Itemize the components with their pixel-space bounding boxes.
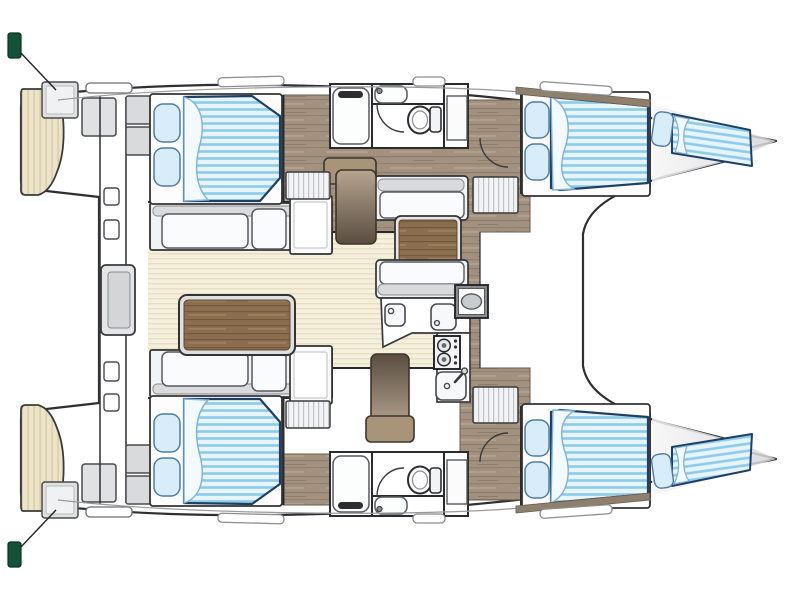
deck-hatch	[218, 76, 284, 87]
stove-knob	[454, 345, 457, 348]
wardrobe	[447, 460, 467, 504]
bench-backrest	[378, 284, 464, 295]
basin-faucet-icon	[377, 88, 382, 93]
stove	[434, 336, 460, 369]
dinette-table	[399, 220, 457, 261]
companionway-steps-port-well	[336, 170, 376, 244]
companionway-steps-starboard	[366, 416, 414, 442]
headboard-locker	[126, 445, 152, 473]
slatted-locker	[286, 172, 330, 199]
bench-backrest	[378, 179, 464, 191]
basin-faucet-icon	[377, 506, 382, 511]
cleat-icon	[8, 542, 21, 567]
slatted-locker	[473, 387, 518, 423]
entry-corner-cabinet-panel	[294, 352, 327, 398]
pillow	[525, 102, 549, 138]
bench-cushion	[380, 262, 464, 284]
stove-knob	[454, 339, 457, 342]
deck-hatch	[413, 514, 445, 523]
transom-step-box	[82, 464, 116, 502]
crossbeam-fitting	[104, 220, 119, 239]
pillow	[154, 458, 180, 496]
pillow	[154, 148, 180, 186]
transom-gate-bar	[86, 507, 132, 517]
headboard-locker	[126, 476, 152, 504]
shower-drain	[338, 502, 363, 509]
bench-cushion	[162, 214, 248, 248]
cleat-icon	[8, 33, 21, 58]
stove-knob	[454, 355, 457, 358]
floor-plan-page	[0, 0, 800, 600]
bench-cushion	[252, 351, 286, 391]
starboard-head	[330, 452, 468, 516]
port-aft-cabin-bed	[150, 94, 282, 204]
port-head	[330, 84, 468, 148]
pillow	[525, 462, 549, 498]
pillow	[651, 111, 675, 147]
starboard-aft-cabin-bed	[150, 396, 282, 506]
cockpit-table	[184, 300, 290, 350]
deck-hatch	[413, 77, 445, 86]
pillow	[154, 414, 180, 452]
galley-sink-small	[385, 304, 405, 326]
bench-cushion	[162, 352, 248, 386]
deck-hatch	[218, 513, 284, 524]
crossbeam-fitting	[104, 362, 119, 381]
port-forward-cabin-bed	[522, 92, 650, 196]
toilet-tank	[430, 468, 441, 493]
transom-step-box	[82, 98, 116, 136]
wardrobe	[447, 96, 467, 140]
slatted-locker	[286, 401, 330, 428]
slatted-locker	[473, 177, 518, 213]
transom-gate-bar	[86, 83, 132, 93]
galley-oval-appliance	[455, 285, 488, 318]
pillow	[525, 420, 549, 456]
entry-corner-cabinet-panel	[294, 202, 327, 248]
headboard-locker	[126, 96, 152, 124]
toilet-tank	[430, 107, 441, 132]
catamaran-floor-plan	[0, 0, 800, 600]
pillow	[651, 453, 675, 489]
shower-drain	[338, 91, 363, 98]
headboard-locker	[126, 127, 152, 155]
stove-knob	[454, 361, 457, 364]
starboard-forward-cabin-bed	[522, 404, 650, 508]
galley-sink-main	[431, 304, 456, 330]
pillow	[154, 104, 180, 142]
faucet-base	[462, 368, 468, 374]
pillow	[525, 144, 549, 180]
bench-cushion	[380, 192, 464, 218]
crossbeam-fitting	[104, 394, 119, 411]
helm-seat-cushion	[108, 272, 130, 328]
crossbeam-fitting	[104, 188, 119, 205]
bench-cushion	[252, 209, 286, 249]
